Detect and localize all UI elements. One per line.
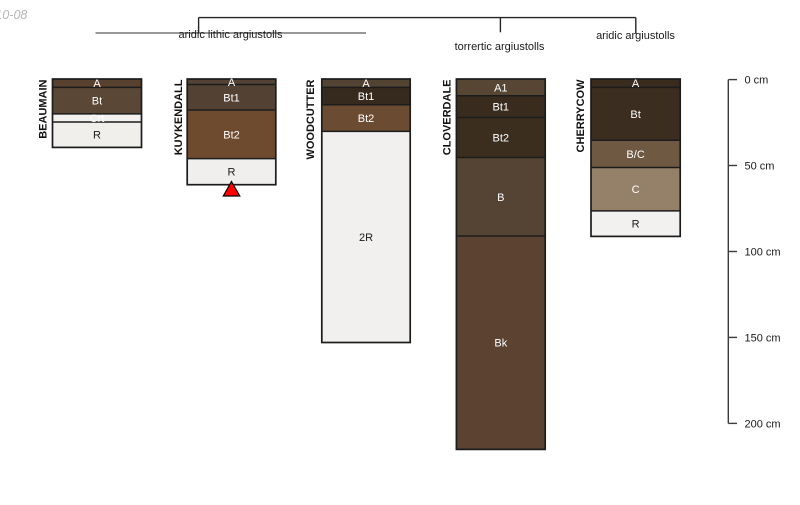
- svg-text:R: R: [632, 219, 640, 231]
- svg-text:BEAUMAIN: BEAUMAIN: [38, 79, 50, 138]
- svg-text:R: R: [93, 130, 101, 142]
- svg-text:B/C: B/C: [626, 149, 644, 161]
- svg-text:A: A: [228, 77, 236, 89]
- svg-text:R: R: [228, 167, 236, 179]
- svg-text:2R: 2R: [359, 232, 373, 244]
- svg-text:B: B: [497, 192, 504, 204]
- svg-text:Bt2: Bt2: [493, 133, 510, 145]
- svg-text:2010-08: 2010-08: [0, 8, 27, 22]
- svg-text:0 cm: 0 cm: [745, 75, 769, 87]
- svg-text:A: A: [93, 78, 101, 90]
- svg-text:torrertic argiustolls: torrertic argiustolls: [455, 41, 545, 53]
- svg-text:200 cm: 200 cm: [745, 418, 781, 430]
- svg-text:50 cm: 50 cm: [745, 161, 775, 173]
- svg-text:Bt1: Bt1: [493, 102, 510, 114]
- svg-text:A: A: [632, 78, 640, 90]
- svg-text:Bt: Bt: [92, 96, 102, 108]
- svg-text:Bk: Bk: [494, 338, 507, 350]
- svg-text:Bt2: Bt2: [223, 129, 240, 141]
- svg-text:aridic argiustolls: aridic argiustolls: [596, 30, 675, 42]
- svg-text:150 cm: 150 cm: [745, 332, 781, 344]
- svg-text:CHERRYCOW: CHERRYCOW: [575, 79, 587, 153]
- svg-text:100 cm: 100 cm: [745, 247, 781, 259]
- svg-text:Bt: Bt: [630, 109, 640, 121]
- svg-text:C: C: [632, 184, 640, 196]
- svg-text:Bt2: Bt2: [358, 113, 375, 125]
- svg-text:WOODCUTTER: WOODCUTTER: [305, 79, 317, 159]
- svg-text:A: A: [362, 78, 370, 90]
- svg-text:A1: A1: [494, 82, 507, 94]
- svg-text:KUYKENDALL: KUYKENDALL: [173, 79, 185, 155]
- svg-text:Bt1: Bt1: [223, 92, 240, 104]
- svg-text:Bt1: Bt1: [358, 91, 375, 103]
- svg-text:Crt: Crt: [90, 113, 105, 125]
- svg-text:CLOVERDALE: CLOVERDALE: [442, 80, 454, 156]
- svg-text:aridic lithic argiustolls: aridic lithic argiustolls: [179, 29, 283, 41]
